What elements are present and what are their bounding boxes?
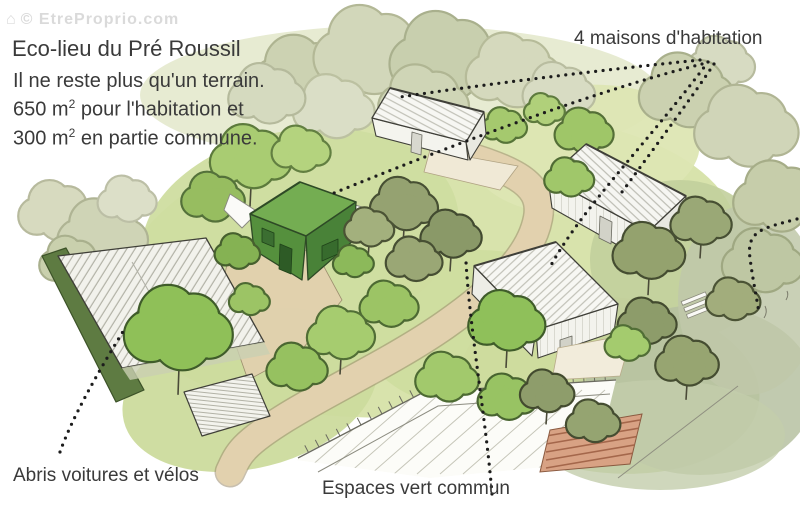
note-line-2: 650 m2 pour l'habitation et <box>13 93 265 122</box>
site-title: Eco-lieu du Pré Roussil <box>12 36 241 62</box>
tree <box>98 176 157 222</box>
area-habitation-value: 650 m <box>13 99 69 121</box>
area-commune-value: 300 m <box>13 127 69 149</box>
area-habitation-rest: pour l'habitation et <box>75 99 243 121</box>
note-line-1: Il ne reste plus qu'un terrain. <box>13 70 265 93</box>
annotation-green-space: Espaces vert commun <box>322 478 510 500</box>
area-commune-rest: en partie commune. <box>75 127 257 149</box>
note-line-3: 300 m2 en partie commune. <box>13 122 265 151</box>
annotation-shelter: Abris voitures et vélos <box>13 465 199 487</box>
watermark: ⌂© EtreProprio.com <box>6 11 179 29</box>
watermark-text: © EtreProprio.com <box>21 11 180 28</box>
annotation-houses: 4 maisons d'habitation <box>574 28 762 50</box>
site-plan-page: ⌂© EtreProprio.com Eco-lieu du Pré Rouss… <box>0 0 800 510</box>
availability-note: Il ne reste plus qu'un terrain. 650 m2 p… <box>13 70 265 150</box>
etreproprio-logo-icon: ⌂ <box>6 11 17 29</box>
